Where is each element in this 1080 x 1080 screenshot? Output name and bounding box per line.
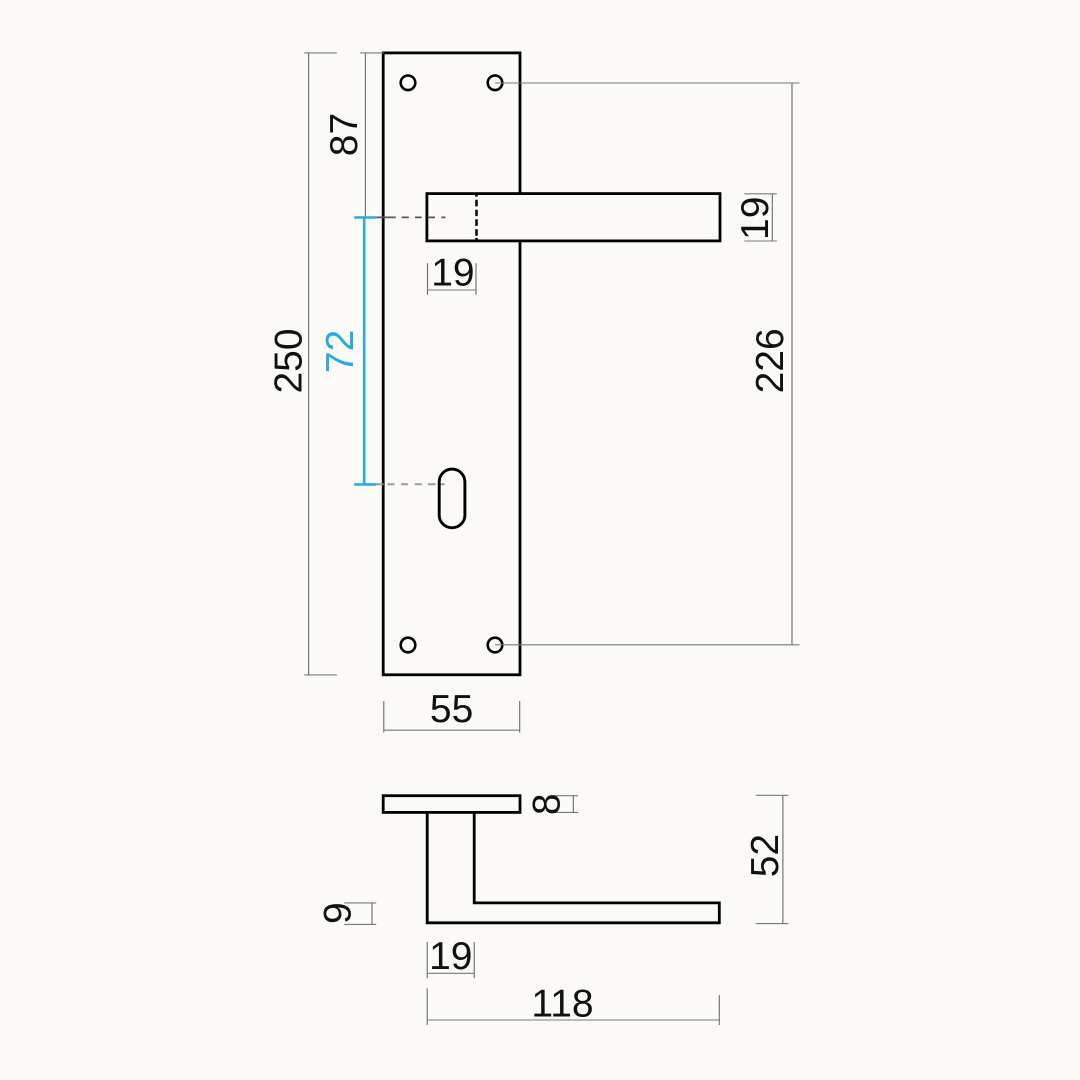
svg-text:52: 52 xyxy=(744,834,787,877)
svg-text:250: 250 xyxy=(268,328,311,393)
svg-text:8: 8 xyxy=(525,793,568,815)
svg-text:226: 226 xyxy=(749,328,792,393)
svg-text:19: 19 xyxy=(429,935,472,978)
svg-text:9: 9 xyxy=(316,902,359,924)
svg-text:55: 55 xyxy=(430,688,473,731)
svg-text:118: 118 xyxy=(531,982,593,1025)
svg-text:72: 72 xyxy=(319,330,362,373)
svg-text:87: 87 xyxy=(323,113,366,156)
svg-text:19: 19 xyxy=(734,197,777,240)
svg-text:19: 19 xyxy=(431,251,474,294)
